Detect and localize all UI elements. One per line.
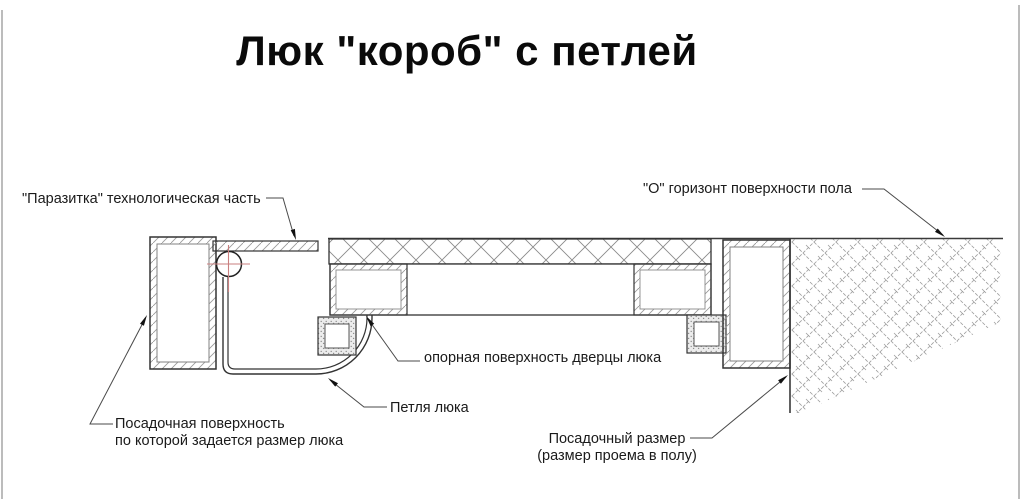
door-cap-left-inner [336,270,401,309]
label-seating-size-line1: Посадочный размер [537,431,697,448]
label-seating-size-line2: (размер проема в полу) [537,448,697,465]
leader-floor-horizon [862,189,943,235]
cad-sheet: Люк "короб" с петлей "Паразитка" техноло… [0,0,1024,499]
label-door-support: опорная поверхность дверцы люка [424,350,661,367]
leader-seating-size [690,377,786,438]
label-floor-horizon: "О" горизонт поверхности пола [643,181,852,198]
door-cap-right-inner [640,270,705,309]
support-square-right-inner [694,322,719,346]
left-frame-inner [157,244,209,362]
label-seating-size: Посадочный размер (размер проема в полу) [537,431,697,465]
leader-door-support [368,319,420,361]
label-seating-surface-line2: по которой задается размер люка [115,433,343,450]
right-frame-inner [730,247,783,361]
leader-hinge [330,380,387,407]
floor-slab-hatch [790,238,1001,413]
arrow-seating-surface [140,315,147,326]
leader-seating-surface [90,319,145,424]
page-title: Люк "короб" с петлей [236,27,697,75]
support-square-left-inner [325,324,349,348]
label-seating-surface-line1: Посадочная поверхность [115,416,343,433]
label-hinge: Петля люка [390,400,469,417]
leader-parasite [266,198,294,236]
arrow-parasite [291,229,296,240]
door-cover-hatch [329,239,711,264]
label-seating-surface: Посадочная поверхность по которой задает… [115,416,343,450]
label-parasite: "Паразитка" технологическая часть [22,191,261,208]
